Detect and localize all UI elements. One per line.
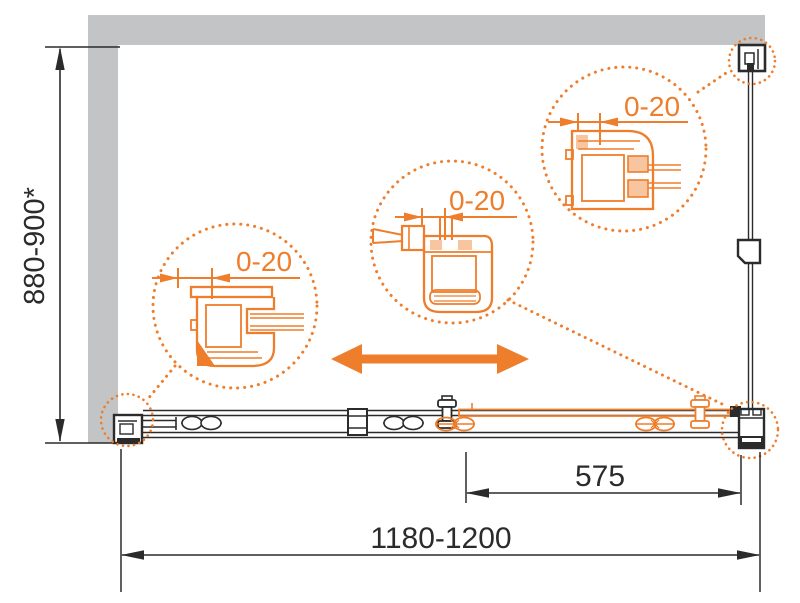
wall-profile-section-top-right bbox=[566, 131, 681, 209]
wall-top bbox=[88, 15, 765, 45]
height-dimension-label: 880-900* bbox=[19, 187, 51, 305]
wall-profile-section-left bbox=[191, 287, 304, 366]
track-junction bbox=[348, 409, 367, 435]
roller-pair-black bbox=[181, 417, 222, 430]
glass-clamp bbox=[738, 240, 760, 263]
arrowhead-down bbox=[55, 419, 64, 442]
callout-leader-line bbox=[698, 71, 729, 92]
roller-pair-orange bbox=[635, 418, 675, 431]
detail-circle-middle: 0-20 bbox=[371, 161, 722, 404]
detail-circle-top-right: 0-20 bbox=[542, 67, 729, 231]
wall-profile-section-middle bbox=[373, 218, 492, 312]
callout-leader-line bbox=[508, 300, 722, 404]
door-width-dimension: 575 bbox=[466, 452, 741, 505]
adjustment-label-left: 0-20 bbox=[236, 246, 292, 277]
slide-direction-arrow bbox=[331, 344, 529, 374]
sliding-door-panel bbox=[459, 403, 730, 416]
arrowhead-up bbox=[55, 47, 64, 70]
door-width-dimension-label: 575 bbox=[575, 460, 625, 493]
fixed-glass-panel bbox=[738, 71, 760, 409]
door-knob-orange bbox=[691, 396, 709, 428]
adjustment-label-middle: 0-20 bbox=[449, 185, 505, 216]
diagram-stage: 880-900* bbox=[0, 0, 800, 603]
total-width-dimension: 1180-1200 bbox=[121, 449, 760, 592]
detail-circle-left: 0-20 bbox=[147, 224, 317, 400]
door-track bbox=[114, 396, 764, 448]
callout-leader-line bbox=[147, 366, 175, 400]
wall-profile-top-right bbox=[739, 45, 765, 71]
roller-pair-black bbox=[383, 417, 424, 430]
wall-profile-bottom-left bbox=[114, 415, 176, 443]
corner-profile-bottom-right bbox=[739, 409, 764, 448]
total-width-dimension-label: 1180-1200 bbox=[370, 522, 511, 555]
wall-left bbox=[88, 15, 118, 443]
adjustment-label-top-right: 0-20 bbox=[624, 91, 680, 122]
technical-drawing-canvas: 880-900* bbox=[0, 0, 800, 603]
